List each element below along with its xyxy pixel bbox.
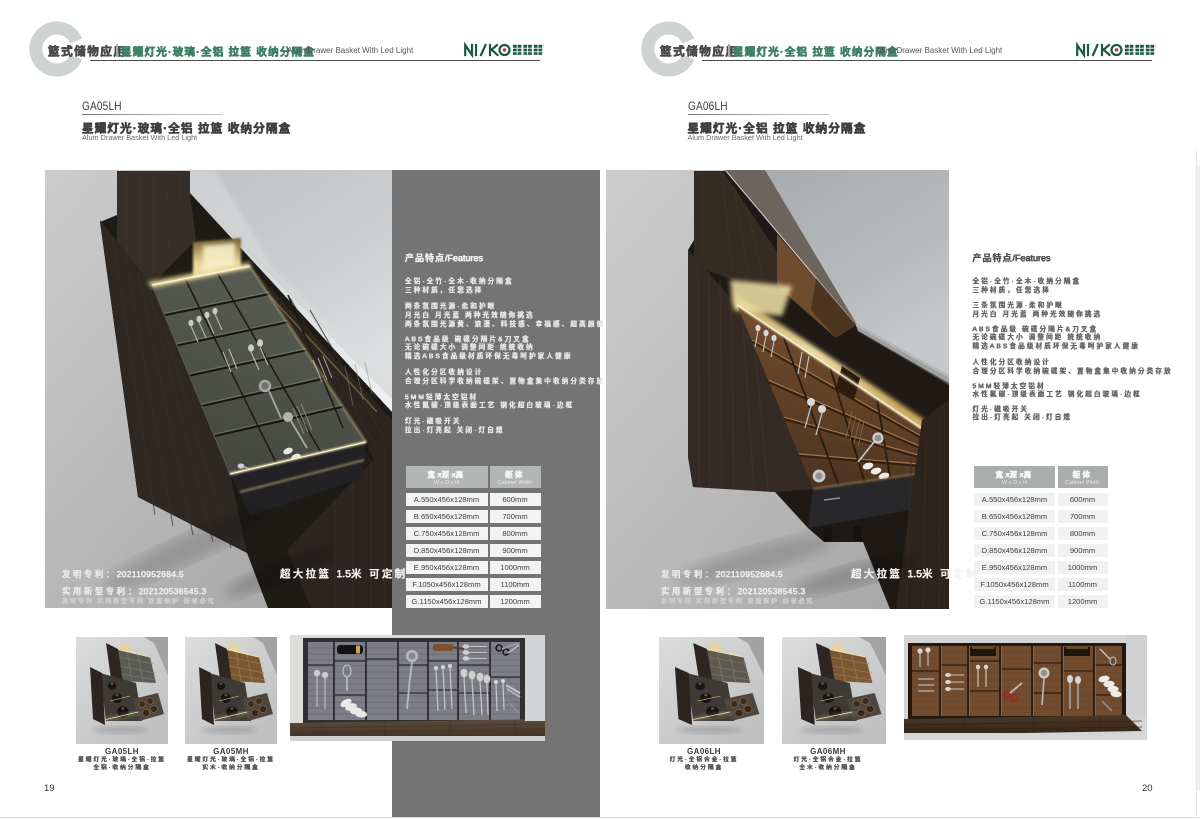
svg-text:®: ®	[543, 43, 544, 48]
svg-text:®: ®	[1155, 43, 1156, 48]
